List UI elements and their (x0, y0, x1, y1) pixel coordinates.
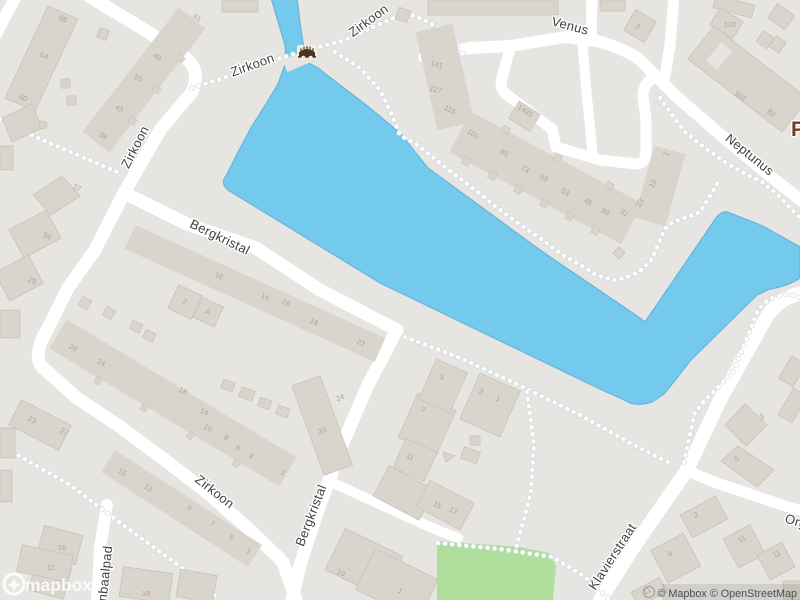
svg-text:18: 18 (142, 589, 150, 598)
svg-text:P: P (791, 118, 800, 141)
svg-text:11: 11 (47, 563, 55, 572)
svg-text:132: 132 (724, 20, 737, 29)
svg-text:mapbox: mapbox (25, 575, 92, 595)
svg-text:16: 16 (58, 543, 66, 552)
svg-text:© Mapbox © OpenStreetMap: © Mapbox © OpenStreetMap (657, 588, 797, 600)
